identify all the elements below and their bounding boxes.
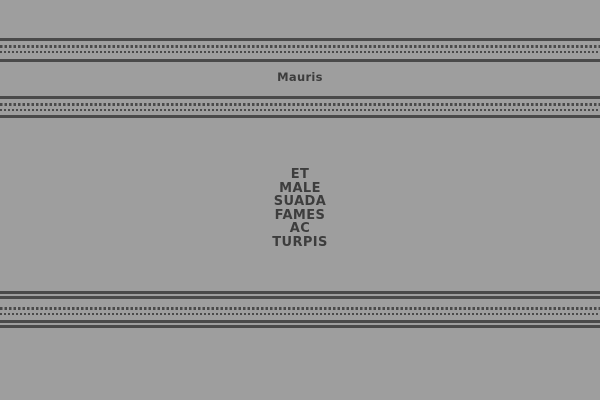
divider-dotted-line-large	[0, 103, 600, 106]
divider-dotted-line-small	[0, 109, 600, 111]
divider-solid-line	[0, 325, 600, 328]
divider-solid-line	[0, 59, 600, 62]
hero-text-line: SUADA	[0, 195, 600, 209]
divider-solid-line	[0, 320, 600, 323]
hero-text-line: AC	[0, 222, 600, 236]
page-background: Mauris ET MALE SUADA FAMES AC TURPIS	[0, 0, 600, 400]
divider-solid-line	[0, 96, 600, 99]
hero-text-line: TURPIS	[0, 236, 600, 250]
hero-text-line: ET	[0, 168, 600, 182]
divider-bottom	[0, 291, 600, 328]
divider-solid-line	[0, 291, 600, 294]
hero-text-block: ET MALE SUADA FAMES AC TURPIS	[0, 168, 600, 249]
divider-solid-line	[0, 38, 600, 41]
divider-under-title	[0, 96, 600, 118]
divider-solid-line	[0, 115, 600, 118]
divider-dotted-line-large	[0, 307, 600, 310]
divider-dotted-line-large	[0, 45, 600, 48]
hero-text-line: FAMES	[0, 209, 600, 223]
divider-solid-line	[0, 296, 600, 299]
hero-text-line: MALE	[0, 182, 600, 196]
divider-top	[0, 38, 600, 62]
divider-dotted-line-small	[0, 313, 600, 315]
divider-dotted-line-small	[0, 51, 600, 53]
page-title: Mauris	[0, 70, 600, 84]
